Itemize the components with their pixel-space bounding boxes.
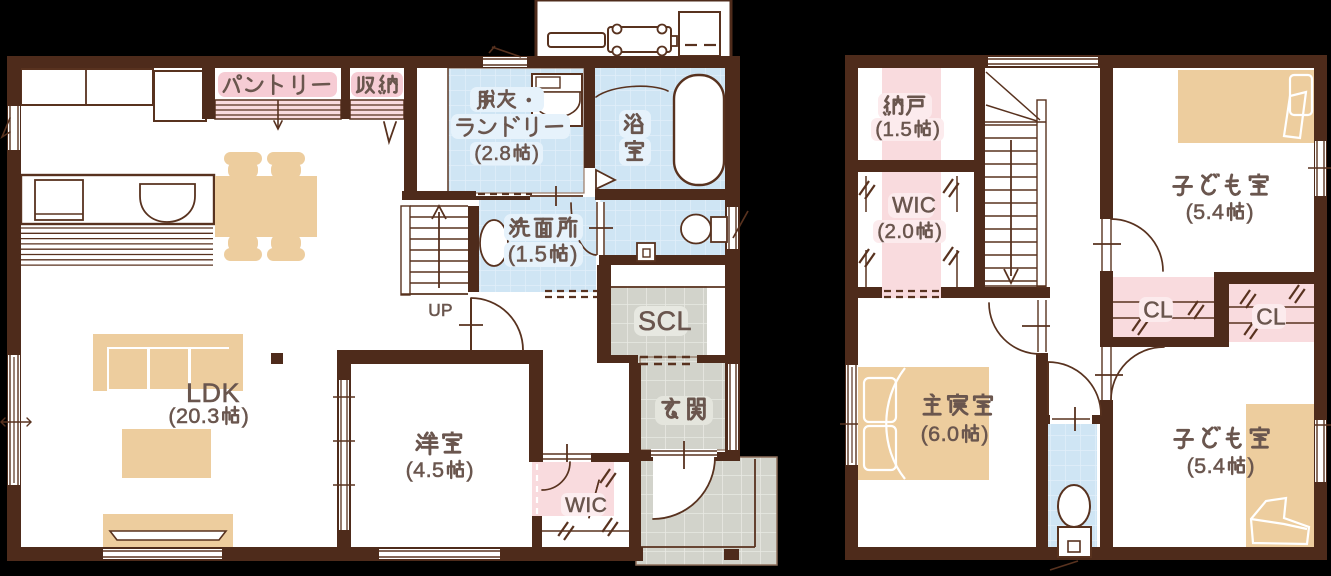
svg-text:CL: CL xyxy=(1143,297,1173,323)
svg-text:(2.0: (2.0 xyxy=(877,220,914,243)
svg-text:(20.3: (20.3 xyxy=(168,403,219,428)
svg-text:(1.5: (1.5 xyxy=(508,241,548,266)
svg-text:CL: CL xyxy=(1256,304,1286,330)
svg-text:(1.5: (1.5 xyxy=(875,118,912,141)
svg-text:): ) xyxy=(981,421,989,446)
svg-text:): ) xyxy=(935,220,942,243)
svg-text:): ) xyxy=(466,457,474,482)
svg-text:UP: UP xyxy=(428,300,453,320)
svg-text:): ) xyxy=(242,403,250,428)
svg-text:): ) xyxy=(1247,453,1255,478)
svg-text:(2.8: (2.8 xyxy=(474,142,511,165)
svg-text:): ) xyxy=(570,241,578,266)
svg-text:(5.4: (5.4 xyxy=(1186,199,1225,224)
svg-text:): ) xyxy=(1246,199,1254,224)
svg-text:(6.0: (6.0 xyxy=(921,421,960,446)
svg-text:(4.5: (4.5 xyxy=(406,457,445,482)
svg-text:(5.4: (5.4 xyxy=(1187,453,1226,478)
svg-text:WIC: WIC xyxy=(892,192,936,217)
svg-text:SCL: SCL xyxy=(638,306,692,336)
svg-text:): ) xyxy=(933,118,940,141)
svg-text:): ) xyxy=(532,142,539,165)
svg-text:WIC: WIC xyxy=(565,494,607,517)
